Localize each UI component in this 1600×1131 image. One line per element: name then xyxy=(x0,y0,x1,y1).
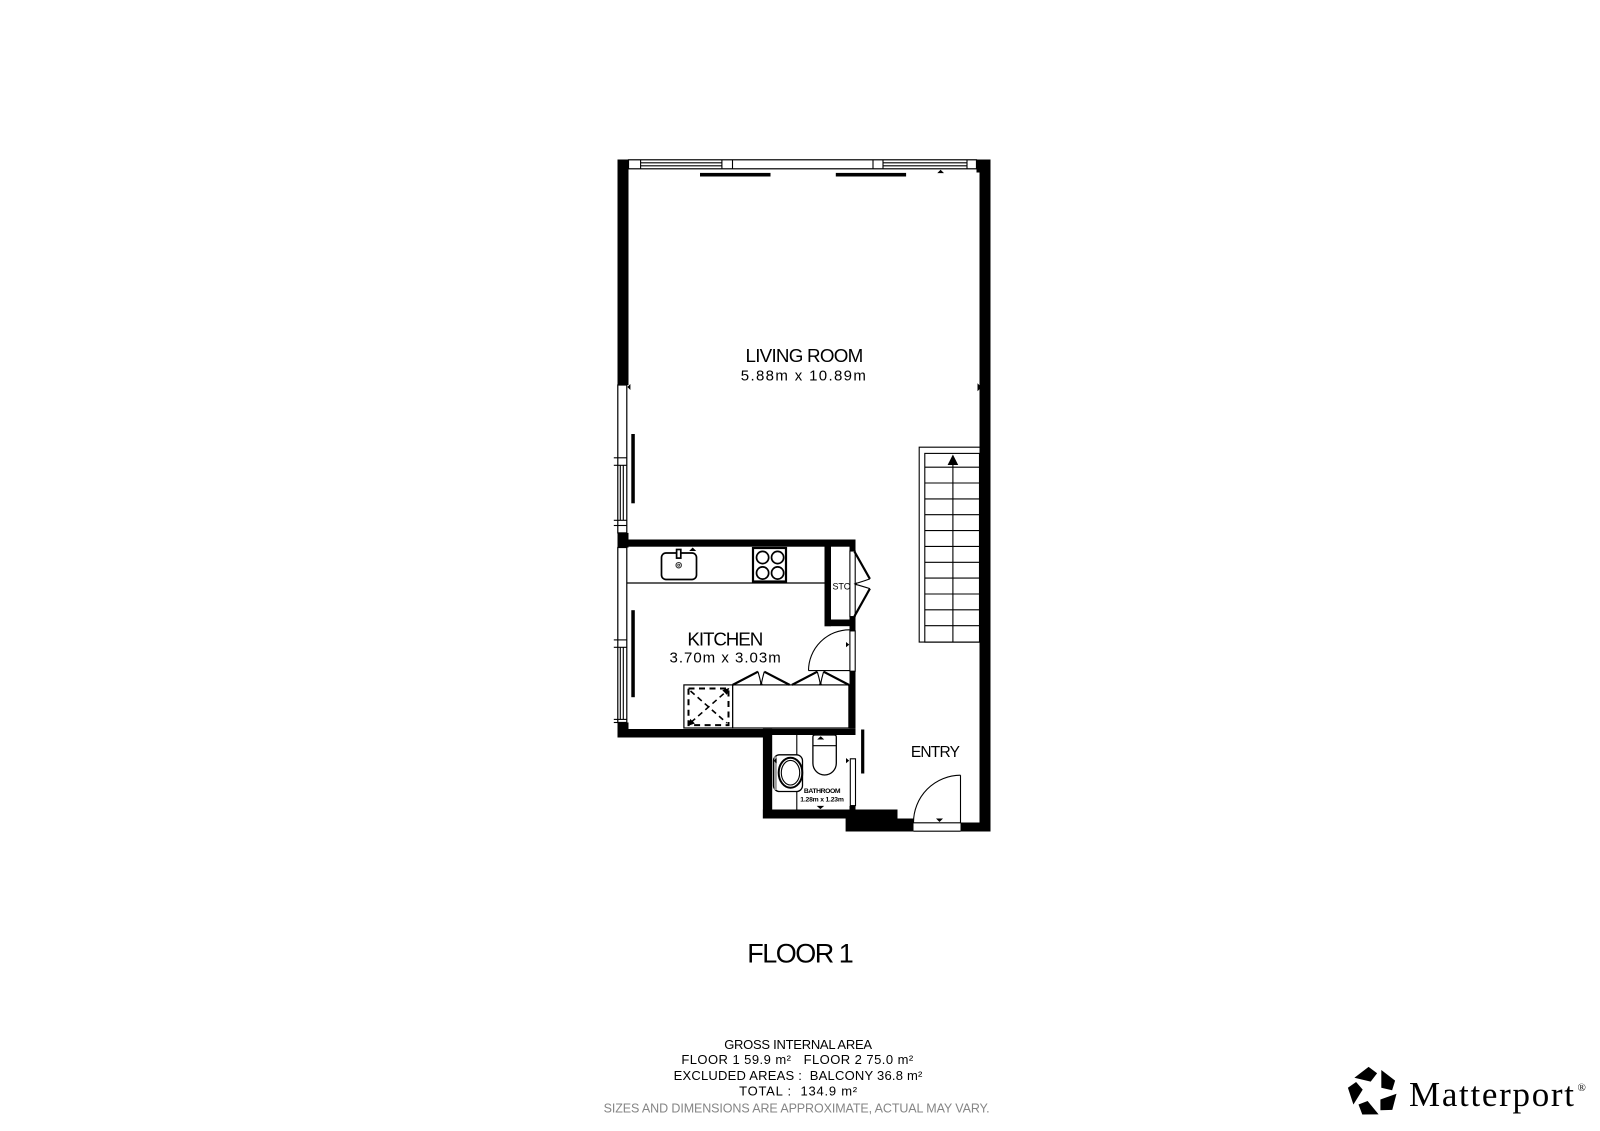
svg-text:KITCHEN: KITCHEN xyxy=(687,628,762,649)
svg-text:SIZES AND DIMENSIONS ARE APPRO: SIZES AND DIMENSIONS ARE APPROXIMATE, AC… xyxy=(604,1102,990,1116)
svg-text:5.88m x 10.89m: 5.88m x 10.89m xyxy=(741,367,867,384)
svg-text:EXCLUDED AREAS : BALCONY 36.8: EXCLUDED AREAS : BALCONY 36.8 m² xyxy=(674,1068,923,1083)
svg-text:LIVING ROOM: LIVING ROOM xyxy=(746,345,863,366)
svg-text:FLOOR 1: FLOOR 1 xyxy=(747,939,853,969)
svg-text:GROSS INTERNAL AREA: GROSS INTERNAL AREA xyxy=(724,1037,872,1052)
svg-text:ENTRY: ENTRY xyxy=(911,744,960,761)
svg-text:TOTAL : 134.9 m²: TOTAL : 134.9 m² xyxy=(739,1084,858,1099)
svg-text:®: ® xyxy=(1578,1082,1586,1094)
svg-text:1.28m x 1.23m: 1.28m x 1.23m xyxy=(800,797,844,804)
svg-text:3.70m x 3.03m: 3.70m x 3.03m xyxy=(669,650,781,667)
svg-text:Matterport: Matterport xyxy=(1409,1075,1576,1114)
svg-text:BATHROOM: BATHROOM xyxy=(804,788,841,795)
svg-text:STC: STC xyxy=(832,581,850,591)
svg-text:FLOOR 1 59.9 m² FLOOR 2 75.0: FLOOR 1 59.9 m² FLOOR 2 75.0 m² xyxy=(681,1052,914,1067)
